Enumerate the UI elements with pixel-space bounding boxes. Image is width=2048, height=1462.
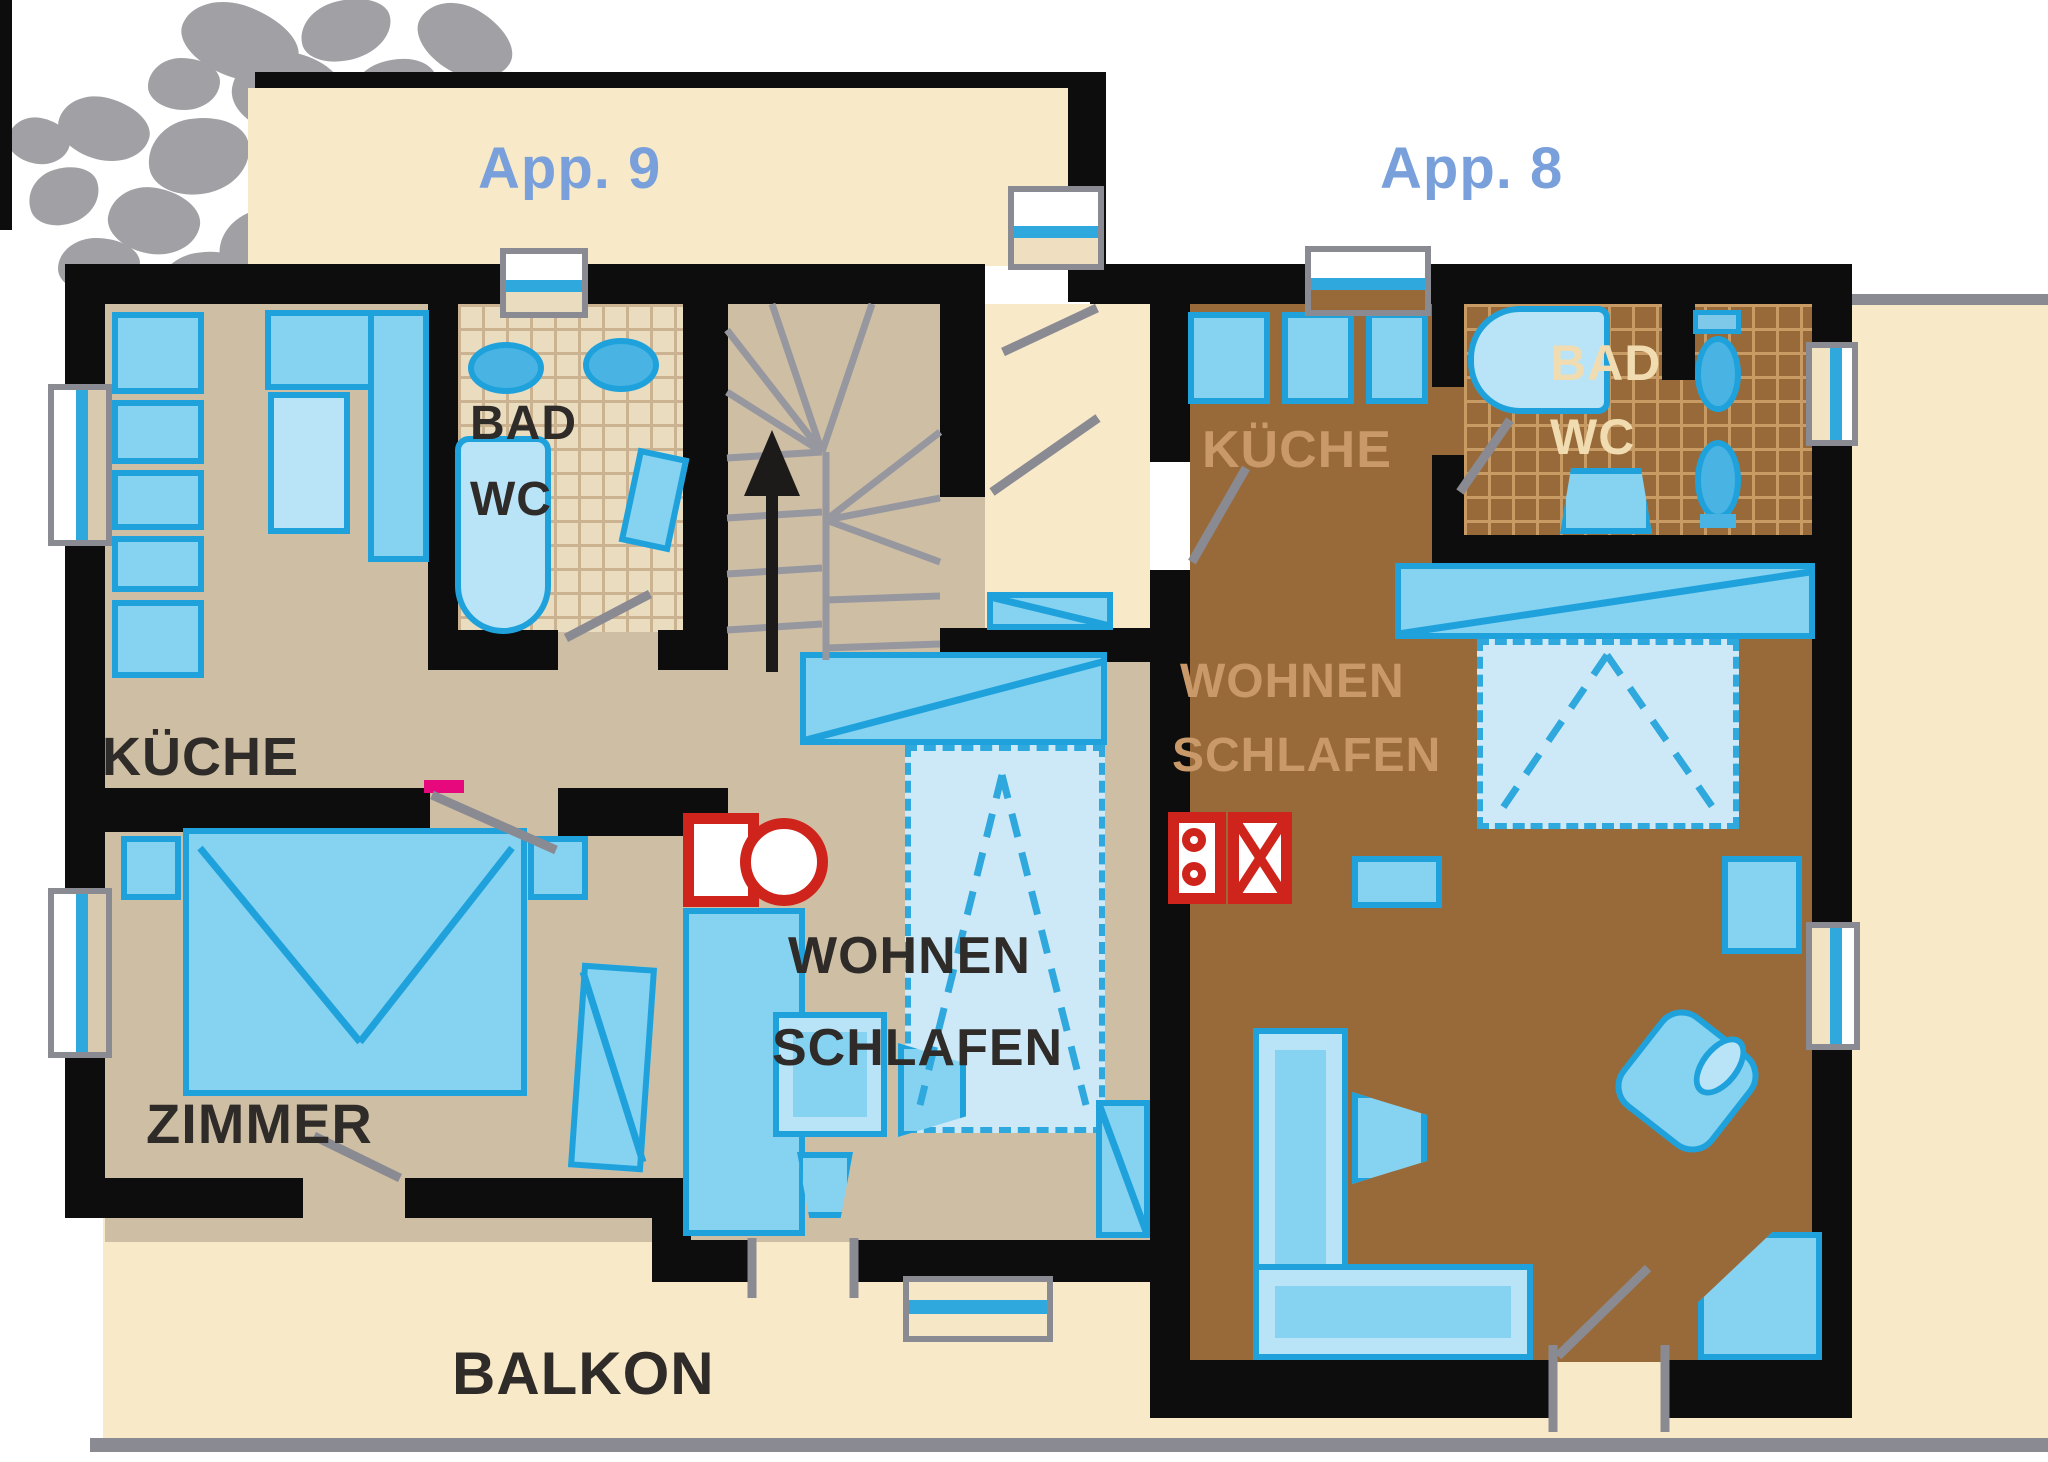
label-kueche-app9: KÜCHE: [102, 730, 299, 784]
bed-fold-line-app8: [1398, 572, 1810, 634]
label-wc-app8: WC: [1550, 412, 1635, 462]
oven-cross-icon: [1234, 818, 1286, 898]
label-schlafen-app9: SCHLAFEN: [772, 1022, 1063, 1074]
label-zimmer-app9: ZIMMER: [146, 1096, 373, 1152]
linework-layer: [0, 0, 2048, 1462]
label-app9: App. 9: [478, 140, 661, 198]
label-bad-app9: BAD: [470, 400, 577, 448]
door-swing-icon: [992, 418, 1098, 492]
door-swing-icon: [1558, 1268, 1648, 1356]
label-wohnen-app9: WOHNEN: [788, 930, 1031, 982]
door-swing-icon: [432, 795, 556, 850]
shelf-line: [990, 597, 1110, 626]
label-app8: App. 8: [1380, 140, 1563, 198]
label-kueche-app8: KÜCHE: [1202, 424, 1392, 476]
pullout-bed-pattern-app8: [1500, 655, 1716, 812]
wardrobe-door-line: [1099, 1104, 1147, 1234]
door-swing-icon: [566, 594, 650, 638]
label-schlafen-app8: SCHLAFEN: [1172, 732, 1441, 780]
label-wc-app9: WC: [470, 476, 552, 524]
label-bad-app8: BAD: [1550, 338, 1661, 388]
door-swing-icon: [1003, 308, 1097, 352]
door-frame-ticks: [1553, 1345, 1665, 1432]
floor-plan-page: { "apartments": { "app9": { "label": "Ap…: [0, 0, 2048, 1462]
door-swing-icon: [1460, 420, 1510, 492]
stairs-up-arrow-icon: [744, 430, 800, 672]
wardrobe-door-line: [583, 972, 643, 1162]
label-wohnen-app8: WOHNEN: [1180, 658, 1405, 706]
door-swing-icon: [1192, 468, 1246, 562]
sofa-fold-line-app9: [806, 662, 1102, 740]
label-balkon: BALKON: [452, 1344, 715, 1404]
bed-pattern-app9: [200, 848, 512, 1042]
door-frame-ticks: [752, 1238, 854, 1298]
